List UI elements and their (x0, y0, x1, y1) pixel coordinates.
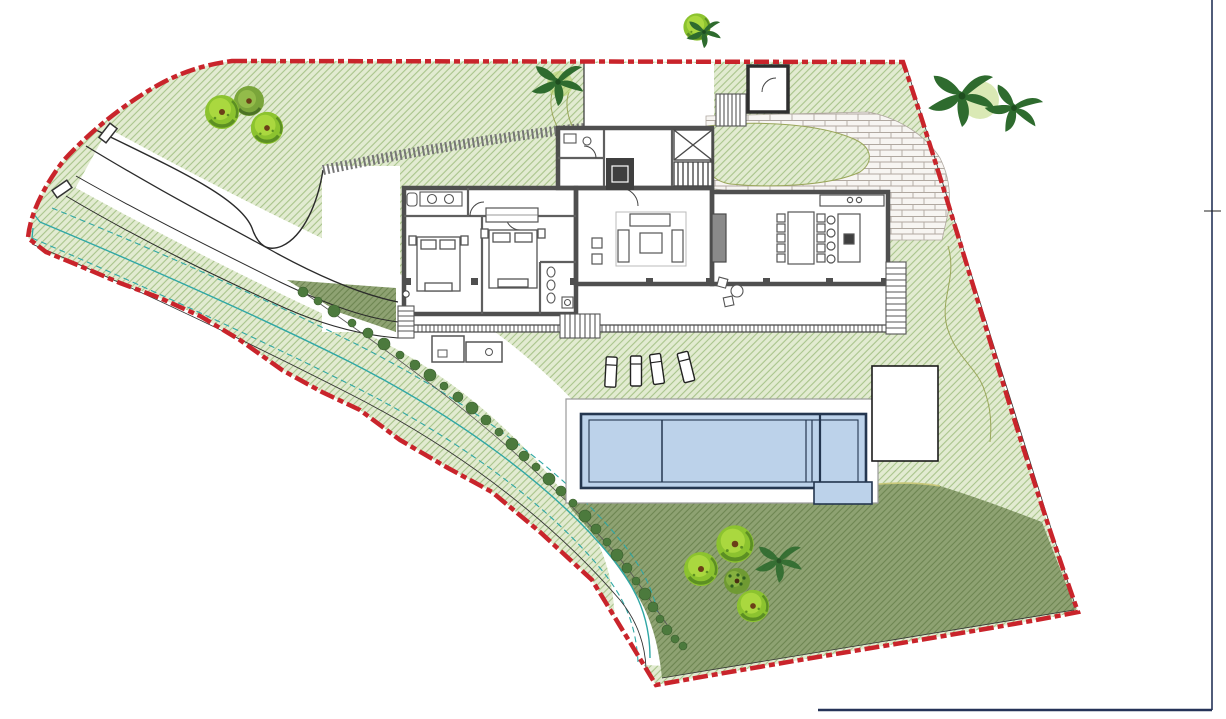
stairs-south (560, 314, 600, 338)
dining-table (788, 212, 814, 264)
terrace-edge-wall (398, 325, 892, 332)
sofa-long (630, 214, 670, 226)
pool-pavilion (872, 366, 938, 461)
bathroom-nw (407, 192, 462, 206)
bed-2 (481, 229, 545, 288)
entry-porch (748, 66, 788, 112)
swimming-pool (581, 414, 866, 488)
bed-1 (409, 236, 468, 291)
tree (716, 525, 753, 562)
stairs-north-court (716, 94, 746, 126)
armchair (592, 238, 602, 248)
chimney-wall (712, 214, 726, 262)
stairs-east (886, 262, 906, 334)
coffee-table (640, 233, 662, 253)
sofa-right (672, 230, 683, 262)
tree (205, 95, 239, 129)
fireplace (606, 158, 634, 190)
terrace-column-round (403, 291, 409, 297)
armchair (592, 254, 602, 264)
stair-lift-core (674, 130, 712, 186)
tree (251, 112, 283, 144)
dining-set (777, 212, 825, 264)
motor-court (584, 63, 714, 130)
tree (724, 568, 750, 594)
stairs-west (398, 306, 414, 338)
tree (737, 590, 769, 622)
pool-extension (814, 482, 872, 504)
site-plan-svg (0, 0, 1226, 719)
sun-lounger (605, 357, 618, 388)
sofa-left (618, 230, 629, 262)
sun-lounger (631, 356, 642, 386)
drawing-sheet (0, 0, 1226, 719)
cooktop (844, 234, 854, 244)
tree (684, 552, 718, 586)
